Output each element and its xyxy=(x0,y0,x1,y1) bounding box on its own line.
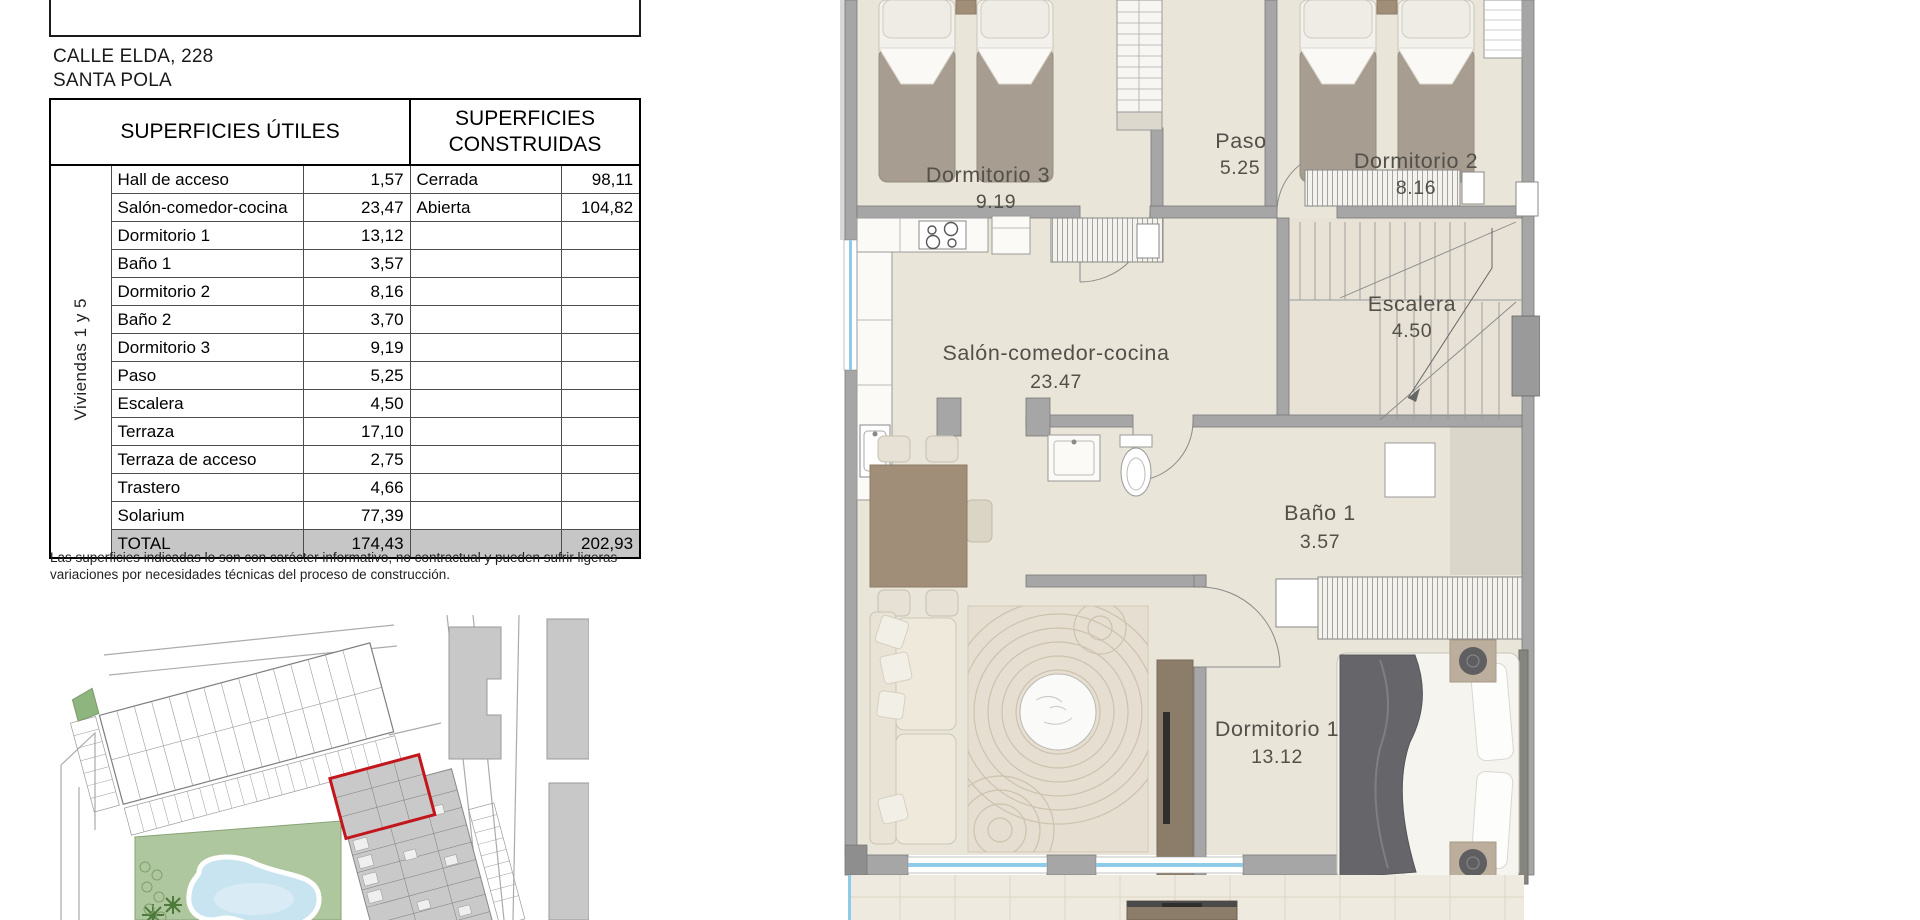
address-line1: CALLE ELDA, 228 xyxy=(53,45,213,69)
left-window xyxy=(844,240,858,370)
bathroom-cabinet xyxy=(1385,443,1435,497)
cell-c_value xyxy=(561,502,640,530)
room-label-dormitorio2: Dormitorio 2 xyxy=(1354,149,1478,173)
cell-value: 3,57 xyxy=(303,250,410,278)
siteplan-garden xyxy=(135,821,341,920)
bathroom-vanity xyxy=(1048,435,1100,481)
cell-value: 8,16 xyxy=(303,278,410,306)
nightstand xyxy=(956,0,976,14)
cell-c_value xyxy=(561,446,640,474)
cell-c_value xyxy=(561,418,640,446)
address: CALLE ELDA, 228 SANTA POLA xyxy=(53,45,213,93)
table-row: Terraza de acceso2,75 xyxy=(50,446,640,474)
cell-c_name: Abierta xyxy=(410,194,561,222)
table-row: Solarium77,39 xyxy=(50,502,640,530)
table-header-row: SUPERFICIES ÚTILES SUPERFICIES CONSTRUID… xyxy=(50,99,640,165)
cooktop xyxy=(919,221,966,249)
cell-name: Salón-comedor-cocina xyxy=(111,194,303,222)
wardrobe-corner xyxy=(1484,0,1522,58)
cell-c_name xyxy=(410,474,561,502)
room-label-paso: Paso xyxy=(1215,129,1266,153)
exterior-strip xyxy=(840,0,845,240)
cell-value: 13,12 xyxy=(303,222,410,250)
dining-table xyxy=(870,465,967,587)
cell-c_name xyxy=(410,502,561,530)
disclaimer-note: Las superficies indicadas lo son con car… xyxy=(50,549,642,583)
cell-c_value xyxy=(561,474,640,502)
room-label-salon: Salón-comedor-cocina xyxy=(942,341,1169,365)
cell-name: Solarium xyxy=(111,502,303,530)
table-row: Salón-comedor-cocina23,47Abierta104,82 xyxy=(50,194,640,222)
cell-c_value xyxy=(561,390,640,418)
group-label: Viviendas 1 y 5 xyxy=(71,298,91,420)
cell-c_value xyxy=(561,278,640,306)
table-row: Dormitorio 113,12 xyxy=(50,222,640,250)
room-label-dormitorio1: Dormitorio 1 xyxy=(1215,717,1339,741)
table-row: Dormitorio 28,16 xyxy=(50,278,640,306)
cell-c_value: 98,11 xyxy=(561,165,640,194)
storage-floor xyxy=(1450,427,1522,575)
cell-name: Escalera xyxy=(111,390,303,418)
table-row: Escalera4,50 xyxy=(50,390,640,418)
tv-screen xyxy=(1163,712,1170,824)
table-row: Viviendas 1 y 5Hall de acceso1,57Cerrada… xyxy=(50,165,640,194)
right-wall-niche xyxy=(1516,182,1538,216)
logo-box xyxy=(49,0,641,37)
cell-value: 1,57 xyxy=(303,165,410,194)
table-row: Baño 23,70 xyxy=(50,306,640,334)
group-label-cell: Viviendas 1 y 5 xyxy=(50,165,111,558)
cell-name: Trastero xyxy=(111,474,303,502)
closet-hatched-dorm2 xyxy=(1305,170,1484,206)
room-area-escalera: 4.50 xyxy=(1392,320,1432,342)
surfaces-table: SUPERFICIES ÚTILES SUPERFICIES CONSTRUID… xyxy=(49,98,641,559)
cell-value: 9,19 xyxy=(303,334,410,362)
table-row: Baño 13,57 xyxy=(50,250,640,278)
terrace xyxy=(848,875,1524,920)
cell-name: Baño 2 xyxy=(111,306,303,334)
cell-c_value xyxy=(561,362,640,390)
room-area-dormitorio2: 8.16 xyxy=(1396,177,1436,199)
table-row: Paso5,25 xyxy=(50,362,640,390)
cell-name: Paso xyxy=(111,362,303,390)
cell-c_name: Cerrada xyxy=(410,165,561,194)
cell-c_value xyxy=(561,250,640,278)
cell-name: Terraza xyxy=(111,418,303,446)
table-row: Trastero4,66 xyxy=(50,474,640,502)
header-superficies-utiles: SUPERFICIES ÚTILES xyxy=(50,99,410,165)
cell-value: 77,39 xyxy=(303,502,410,530)
kitchen-tall-units xyxy=(1051,218,1163,262)
cell-c_name xyxy=(410,362,561,390)
cell-value: 23,47 xyxy=(303,194,410,222)
cell-c_name xyxy=(410,446,561,474)
cell-c_value xyxy=(561,334,640,362)
table-row: Dormitorio 39,19 xyxy=(50,334,640,362)
room-area-dormitorio1: 13.12 xyxy=(1251,746,1303,768)
cell-value: 4,50 xyxy=(303,390,410,418)
toilet xyxy=(1120,435,1152,496)
cell-c_value xyxy=(561,306,640,334)
cell-c_name xyxy=(410,250,561,278)
cell-value: 4,66 xyxy=(303,474,410,502)
cell-value: 5,25 xyxy=(303,362,410,390)
cell-c_value: 104,82 xyxy=(561,194,640,222)
cell-name: Hall de acceso xyxy=(111,165,303,194)
coffee-table xyxy=(1020,674,1096,750)
header-superficies-construidas: SUPERFICIES CONSTRUIDAS xyxy=(410,99,640,165)
page: CALLE ELDA, 228 SANTA POLA SUPERFICIES Ú… xyxy=(0,0,1920,920)
cell-c_name xyxy=(410,334,561,362)
room-area-salon: 23.47 xyxy=(1030,371,1082,393)
room-label-dormitorio3: Dormitorio 3 xyxy=(926,163,1050,187)
cell-name: Dormitorio 2 xyxy=(111,278,303,306)
fridge xyxy=(992,216,1030,254)
wardrobe-shelved xyxy=(1117,0,1162,130)
cell-c_name xyxy=(410,222,561,250)
nightstand xyxy=(1377,0,1397,14)
tv-unit xyxy=(1157,660,1193,878)
rug xyxy=(946,600,1170,884)
cell-name: Dormitorio 1 xyxy=(111,222,303,250)
cell-value: 3,70 xyxy=(303,306,410,334)
cell-c_name xyxy=(410,390,561,418)
table-row: Terraza17,10 xyxy=(50,418,640,446)
cell-name: Terraza de acceso xyxy=(111,446,303,474)
sofa xyxy=(870,612,956,844)
address-line2: SANTA POLA xyxy=(53,69,213,93)
room-label-escalera: Escalera xyxy=(1368,292,1456,316)
cell-c_name xyxy=(410,278,561,306)
cell-value: 17,10 xyxy=(303,418,410,446)
room-area-bano1: 3.57 xyxy=(1300,531,1340,553)
cell-name: Baño 1 xyxy=(111,250,303,278)
floor-plan: Dormitorio 3 9.19 Paso 5.25 Dormitorio 2… xyxy=(840,0,1540,920)
cell-c_name xyxy=(410,418,561,446)
site-plan xyxy=(49,615,589,920)
cell-c_name xyxy=(410,306,561,334)
room-label-bano1: Baño 1 xyxy=(1284,501,1356,525)
room-area-paso: 5.25 xyxy=(1220,157,1260,179)
cell-c_value xyxy=(561,222,640,250)
cell-value: 2,75 xyxy=(303,446,410,474)
room-area-dormitorio3: 9.19 xyxy=(976,191,1016,213)
cell-name: Dormitorio 3 xyxy=(111,334,303,362)
washing-machine xyxy=(1127,901,1237,920)
